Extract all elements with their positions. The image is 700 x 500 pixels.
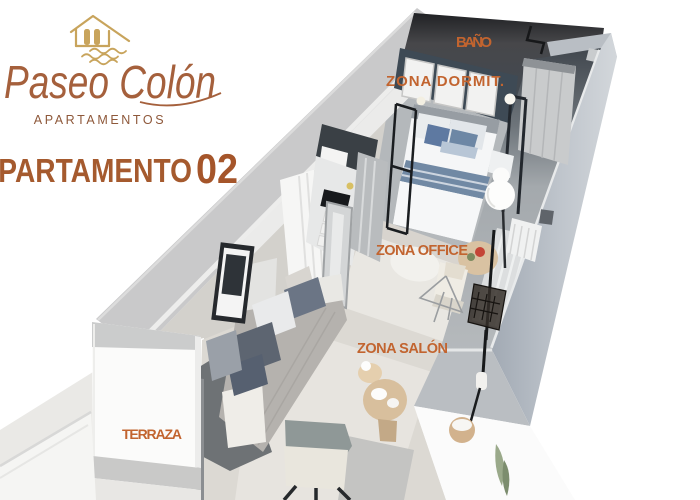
svg-text:ZONA DORMIT.: ZONA DORMIT. — [386, 73, 505, 90]
svg-text:APARTAMENTOS: APARTAMENTOS — [34, 113, 166, 127]
svg-text:ZONA SALÓN: ZONA SALÓN — [357, 339, 449, 357]
svg-text:BAÑO: BAÑO — [456, 33, 493, 51]
svg-text:Paseo Colón: Paseo Colón — [4, 56, 216, 108]
svg-text:ZONA OFFICE: ZONA OFFICE — [376, 243, 469, 259]
svg-text:APARTAMENTO: APARTAMENTO — [0, 152, 192, 189]
svg-text:TERRAZA: TERRAZA — [122, 426, 183, 442]
svg-text:02: 02 — [196, 145, 238, 192]
